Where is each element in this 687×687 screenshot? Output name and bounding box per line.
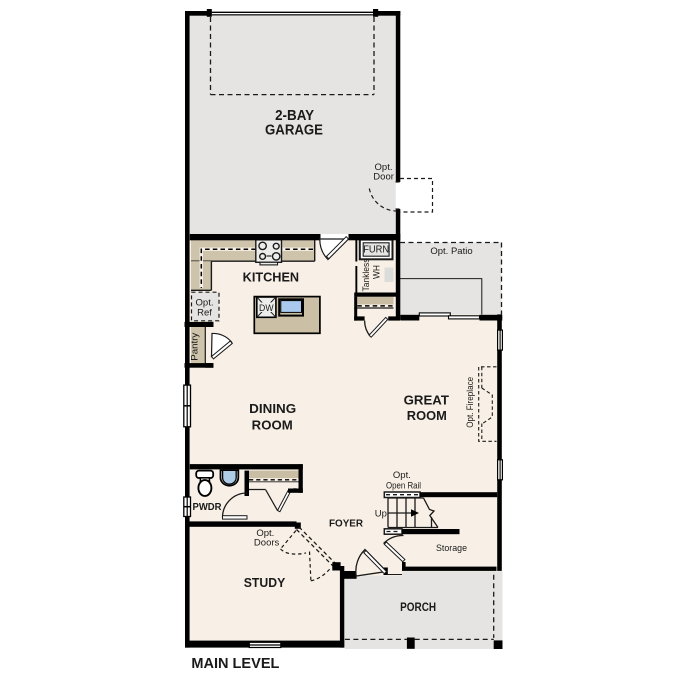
svg-text:Opt. Patio: Opt. Patio (430, 246, 472, 257)
svg-text:Tankless: Tankless (361, 258, 371, 291)
svg-text:GREAT: GREAT (404, 393, 450, 407)
svg-text:Open Rail: Open Rail (386, 480, 421, 491)
svg-text:Opt. Fireplace: Opt. Fireplace (465, 377, 475, 428)
svg-text:GARAGE: GARAGE (265, 122, 323, 138)
svg-text:MAIN LEVEL: MAIN LEVEL (191, 656, 279, 672)
svg-text:Storage: Storage (436, 543, 467, 554)
svg-text:Doors: Doors (254, 537, 280, 548)
svg-text:DW: DW (259, 303, 274, 314)
svg-text:WH: WH (372, 265, 382, 279)
svg-text:ROOM: ROOM (407, 409, 447, 423)
svg-text:STUDY: STUDY (244, 576, 286, 590)
svg-text:FURN: FURN (363, 244, 389, 256)
svg-text:Door: Door (373, 171, 394, 182)
svg-text:2-BAY: 2-BAY (275, 108, 314, 124)
svg-text:PORCH: PORCH (400, 602, 436, 614)
svg-text:KITCHEN: KITCHEN (243, 271, 299, 285)
svg-text:Ref: Ref (197, 307, 212, 318)
svg-text:DINING: DINING (249, 402, 296, 416)
svg-text:ROOM: ROOM (252, 419, 293, 433)
svg-text:PWDR: PWDR (193, 501, 222, 513)
svg-text:Up: Up (375, 509, 387, 520)
svg-text:FOYER: FOYER (329, 518, 363, 530)
svg-text:Pantry: Pantry (190, 332, 201, 360)
